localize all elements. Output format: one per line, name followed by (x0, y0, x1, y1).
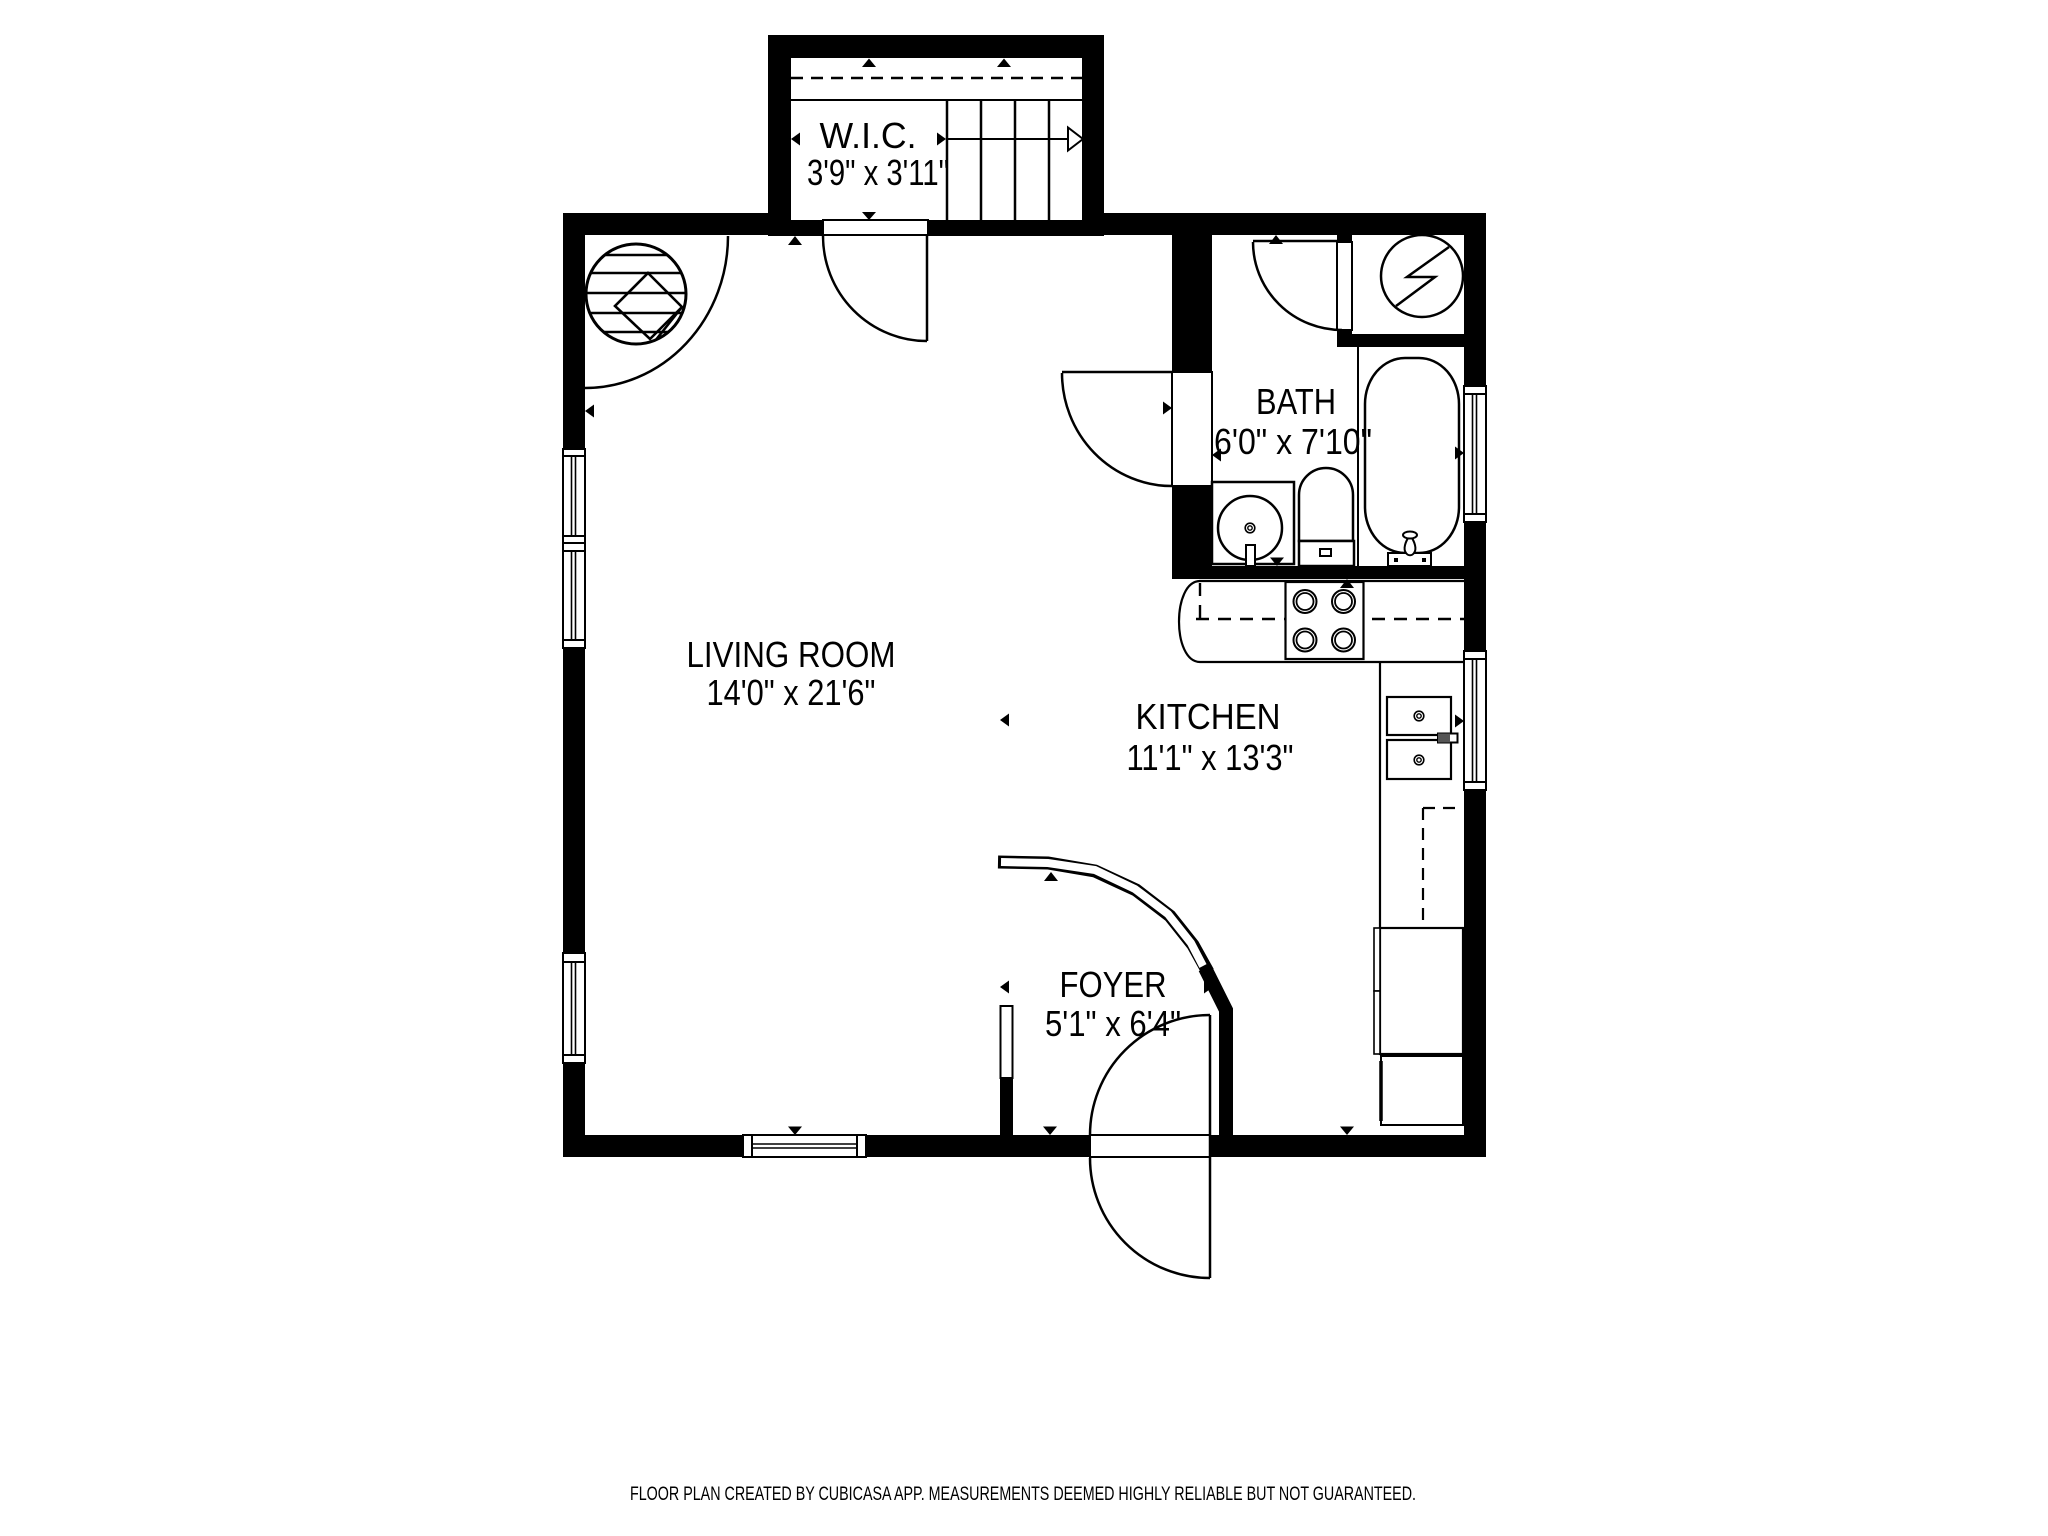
svg-text:3'9" x 3'11": 3'9" x 3'11" (807, 152, 949, 193)
svg-text:W.I.C.: W.I.C. (820, 115, 917, 156)
svg-text:BATH: BATH (1256, 381, 1336, 422)
svg-text:5'1" x 6'4": 5'1" x 6'4" (1045, 1003, 1181, 1044)
svg-text:11'1" x 13'3": 11'1" x 13'3" (1127, 737, 1294, 778)
svg-text:6'0" x 7'10": 6'0" x 7'10" (1214, 421, 1372, 462)
svg-text:FLOOR PLAN CREATED BY CUBICASA: FLOOR PLAN CREATED BY CUBICASA APP. MEAS… (630, 1483, 1416, 1505)
svg-text:KITCHEN: KITCHEN (1136, 696, 1281, 737)
svg-text:FOYER: FOYER (1060, 964, 1167, 1005)
svg-text:LIVING ROOM: LIVING ROOM (687, 634, 896, 675)
svg-text:14'0" x 21'6": 14'0" x 21'6" (707, 672, 876, 713)
